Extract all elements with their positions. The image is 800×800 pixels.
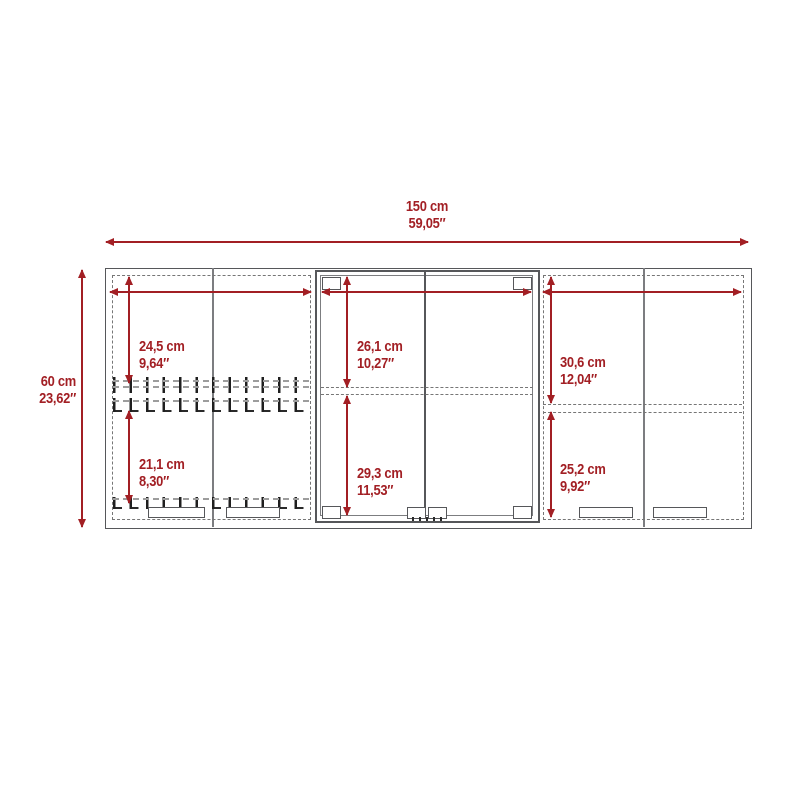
right-upper-arrow (550, 277, 552, 403)
right-lower-label: 25,2 cm 9,92″ (560, 462, 606, 495)
right-shelf-line-bottom (543, 412, 742, 413)
left-upper-cm: 24,5 cm (139, 339, 185, 356)
center-upper-cm: 26,1 cm (357, 339, 403, 356)
overall-height-arrow (81, 270, 83, 527)
overall-height-cm: 60 cm (41, 374, 76, 391)
overall-width-inch: 59,05″ (409, 216, 446, 233)
left-lower-label: 21,1 cm 8,30″ (139, 457, 185, 490)
left-section-width-arrow (110, 291, 311, 293)
overall-width-cm: 150 cm (406, 199, 448, 216)
center-lower-label: 29,3 cm 11,53″ (357, 466, 403, 499)
hinge-bottom-left (322, 506, 341, 519)
glass-shelf-line-bottom (321, 394, 533, 395)
handle-right-1 (579, 507, 633, 518)
center-upper-arrow (346, 277, 348, 387)
overall-width-arrow (106, 241, 748, 243)
cabinet-dimension-diagram: 150 cm 59,05″ 60 cm 23,62″ (0, 0, 800, 800)
stemware-rack-upper-hooks (113, 398, 309, 412)
left-upper-label: 24,5 cm 9,64″ (139, 339, 185, 372)
center-lower-cm: 29,3 cm (357, 466, 403, 483)
center-upper-label: 26,1 cm 10,27″ (357, 339, 403, 372)
left-lower-cm: 21,1 cm (139, 457, 185, 474)
left-lower-arrow (128, 411, 130, 503)
center-upper-inch: 10,27″ (357, 356, 403, 373)
overall-height-label: 60 cm 23,62″ (26, 374, 76, 407)
hinge-bottom-right (513, 506, 532, 519)
glass-shelf-line-top (321, 387, 533, 388)
overall-height-inch: 23,62″ (39, 391, 76, 408)
right-lower-cm: 25,2 cm (560, 462, 606, 479)
right-lower-inch: 9,92″ (560, 479, 606, 496)
left-upper-arrow (128, 277, 130, 383)
right-section-width-arrow (543, 291, 741, 293)
right-lower-arrow (550, 412, 552, 517)
door-bottom-ticks (412, 517, 444, 521)
left-upper-inch: 9,64″ (139, 356, 185, 373)
glass-door-inner-frame (320, 275, 533, 516)
overall-width-label: 150 cm 59,05″ (341, 199, 513, 232)
center-lower-arrow (346, 396, 348, 515)
stemware-rack-upper-rail (113, 377, 309, 393)
bottom-rail-left-2 (226, 507, 280, 518)
handle-right-2 (653, 507, 707, 518)
right-upper-label: 30,6 cm 12,04″ (560, 355, 606, 388)
right-upper-inch: 12,04″ (560, 372, 606, 389)
center-section-width-arrow (322, 291, 531, 293)
right-upper-cm: 30,6 cm (560, 355, 606, 372)
center-lower-inch: 11,53″ (357, 483, 403, 500)
bottom-rail-left-1 (148, 507, 205, 518)
right-shelf-line-top (543, 404, 742, 405)
left-lower-inch: 8,30″ (139, 474, 185, 491)
